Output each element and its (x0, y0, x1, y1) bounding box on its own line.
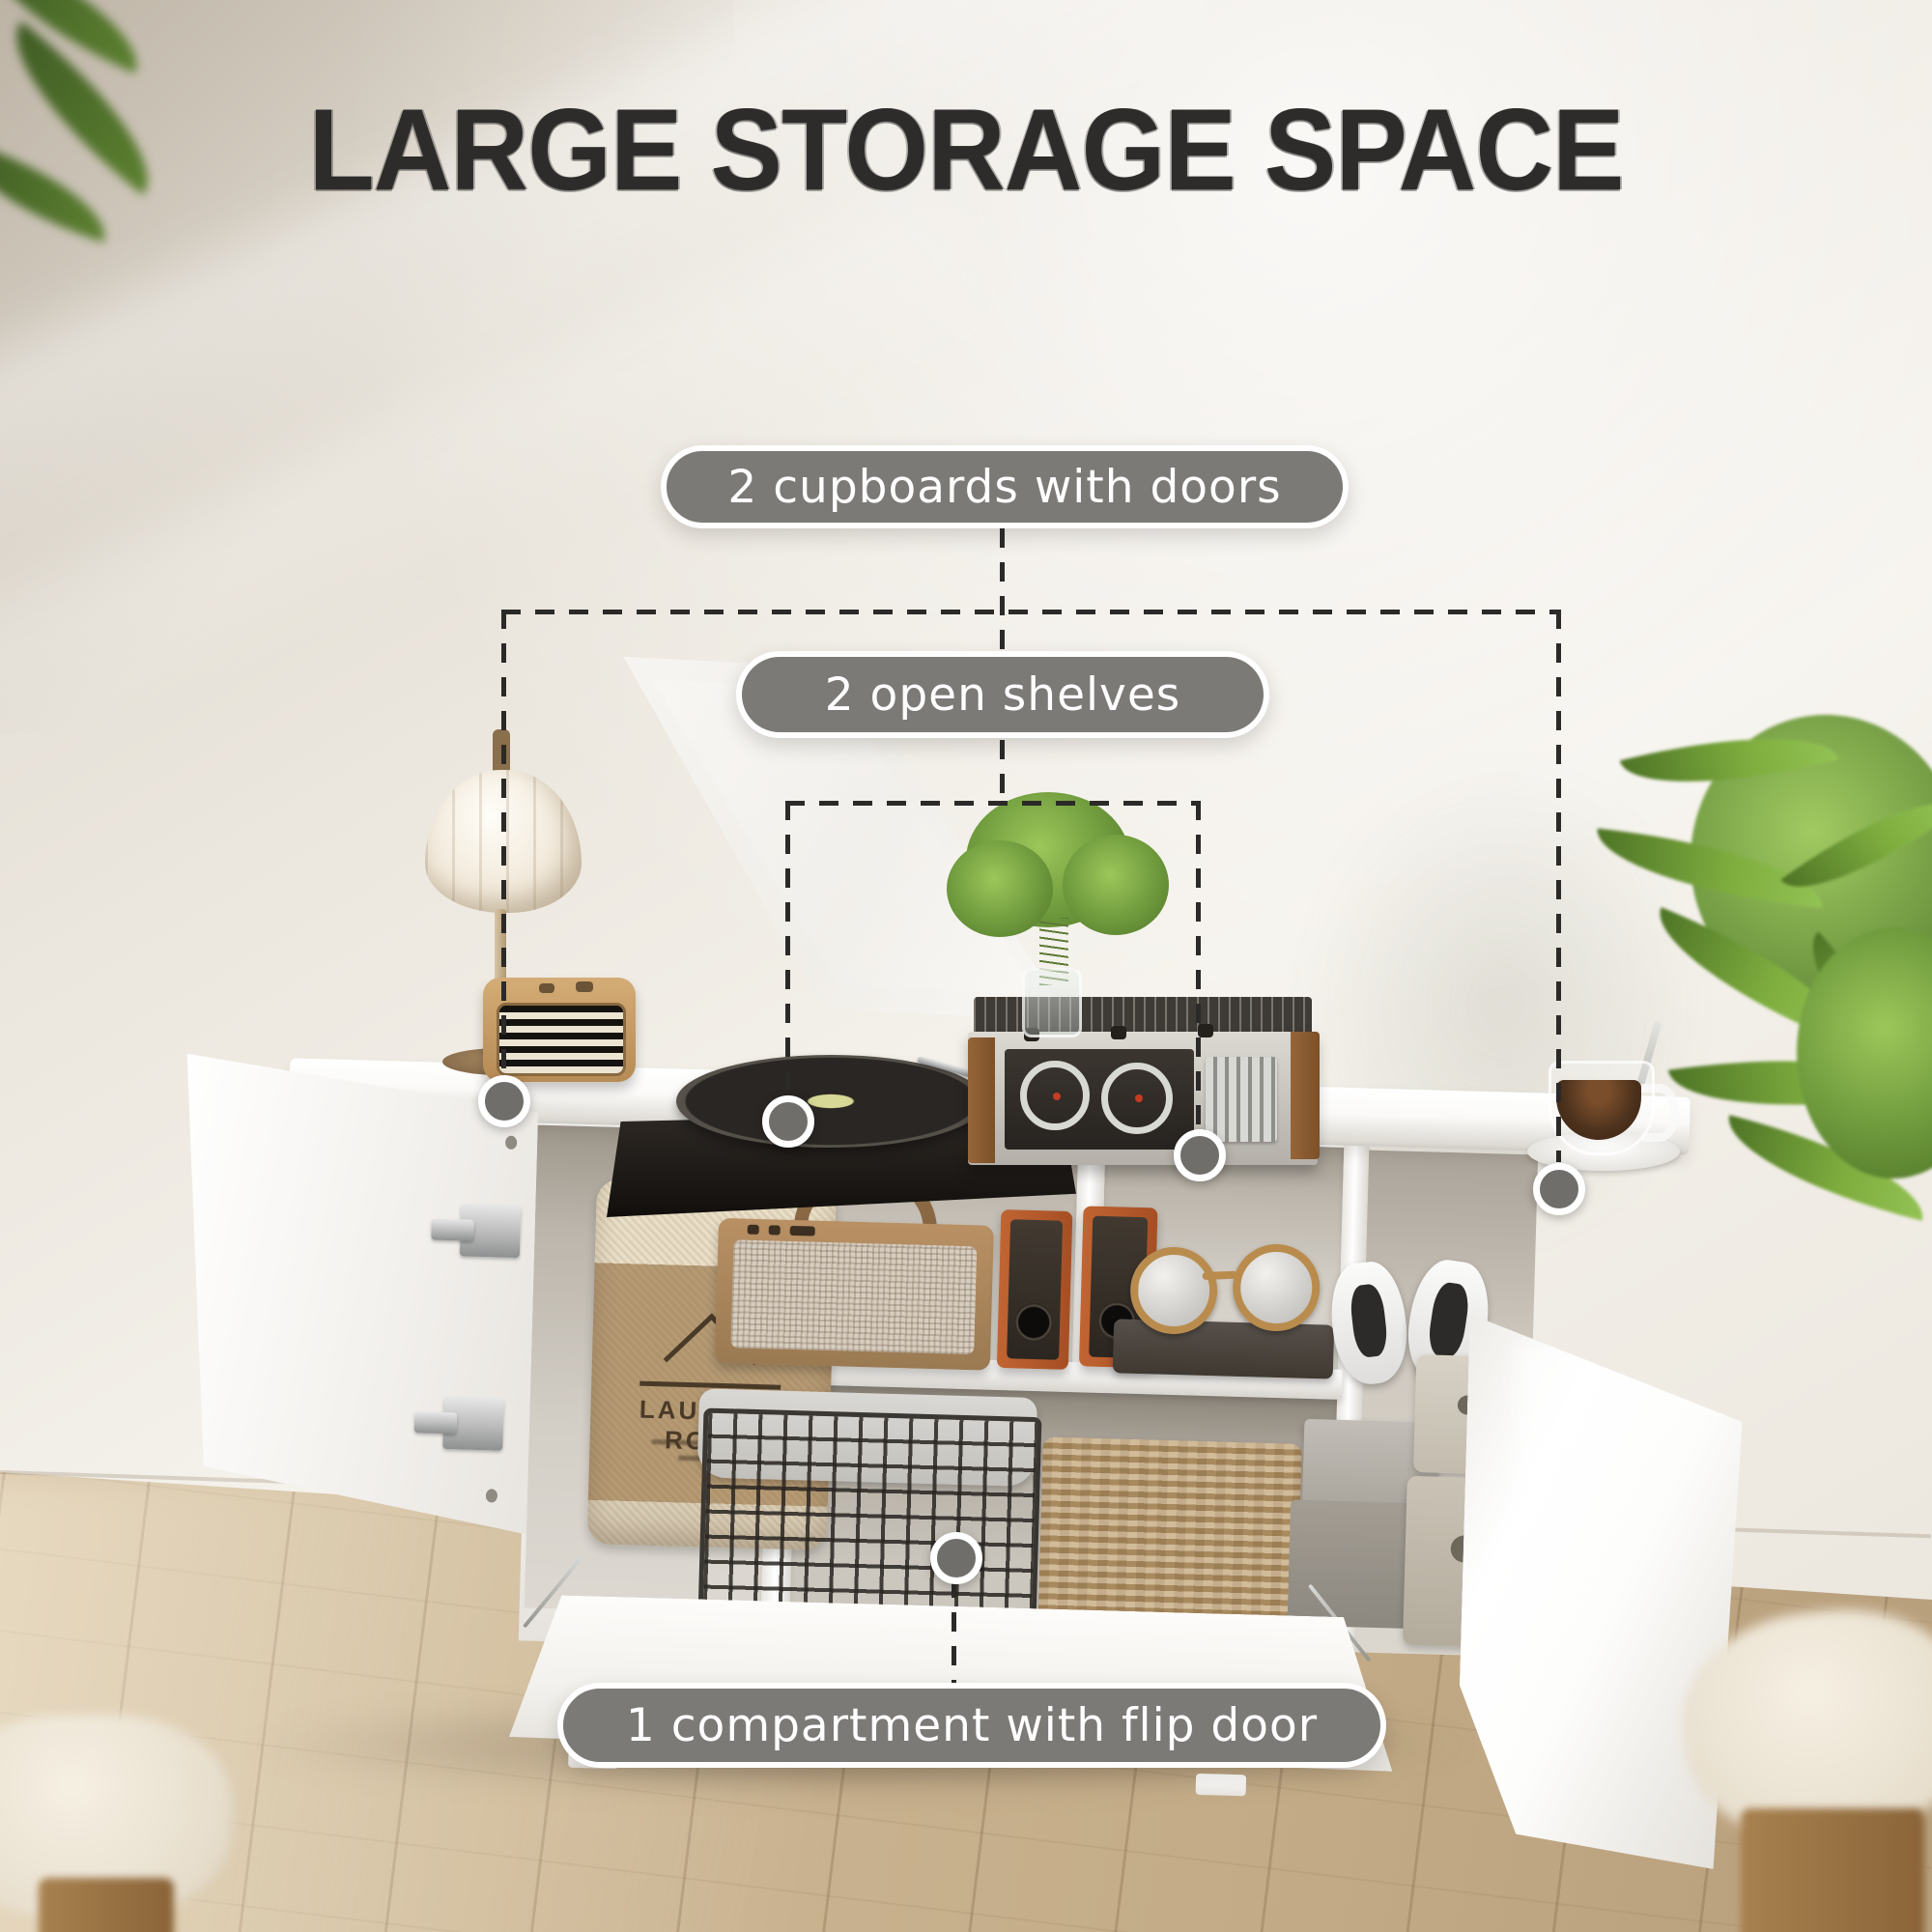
connector-dot (762, 1095, 814, 1148)
cabinet-foot (1196, 1774, 1247, 1796)
stool-leg (39, 1878, 174, 1932)
glasses-case (1113, 1319, 1334, 1378)
wire-basket (697, 1407, 1041, 1628)
connector-line (1556, 610, 1561, 1162)
callout-open-shelves-label: 2 open shelves (825, 668, 1181, 722)
connector-line (1196, 801, 1201, 1130)
connector-dot (478, 1075, 530, 1127)
door-hinge-arm (431, 1219, 474, 1241)
connector-line (1000, 740, 1005, 804)
eyeglasses-bridge (1202, 1271, 1236, 1281)
callout-flip-compartment-label: 1 compartment with flip door (626, 1699, 1318, 1752)
door-glare (1507, 1345, 1670, 1761)
door-hinge-arm (414, 1411, 458, 1434)
connector-dot (1174, 1129, 1226, 1181)
stool-leg (1741, 1808, 1924, 1932)
controller-grip (1349, 1283, 1389, 1359)
callout-cupboards: 2 cupboards with doors (661, 445, 1349, 528)
wicker-basket (1038, 1436, 1302, 1629)
callout-cupboards-label: 2 cupboards with doors (727, 461, 1281, 514)
callout-flip-compartment: 1 compartment with flip door (557, 1683, 1386, 1768)
vintage-radio (715, 1218, 994, 1371)
connector-line (785, 801, 790, 1096)
page-title: LARGE STORAGE SPACE (68, 83, 1864, 216)
radio-knob (790, 1226, 815, 1236)
connector-dot (930, 1532, 982, 1584)
connector-line (952, 1578, 956, 1683)
connector-line (501, 610, 506, 1075)
shelf-pin-hole (486, 1489, 497, 1502)
connector-dot (1533, 1163, 1585, 1215)
connector-line (501, 610, 1561, 614)
product-infographic: LAUNDRY ROOM (0, 0, 1932, 1932)
radio-knob (769, 1225, 781, 1235)
connector-line (1000, 528, 1005, 653)
radio-grille (730, 1239, 977, 1354)
connector-line (785, 801, 1201, 806)
callout-open-shelves: 2 open shelves (736, 651, 1269, 738)
controller-grip (1427, 1281, 1471, 1359)
bookshelf-speaker (997, 1209, 1073, 1370)
shelf-pin-hole (505, 1136, 517, 1150)
radio-knob (748, 1225, 759, 1235)
